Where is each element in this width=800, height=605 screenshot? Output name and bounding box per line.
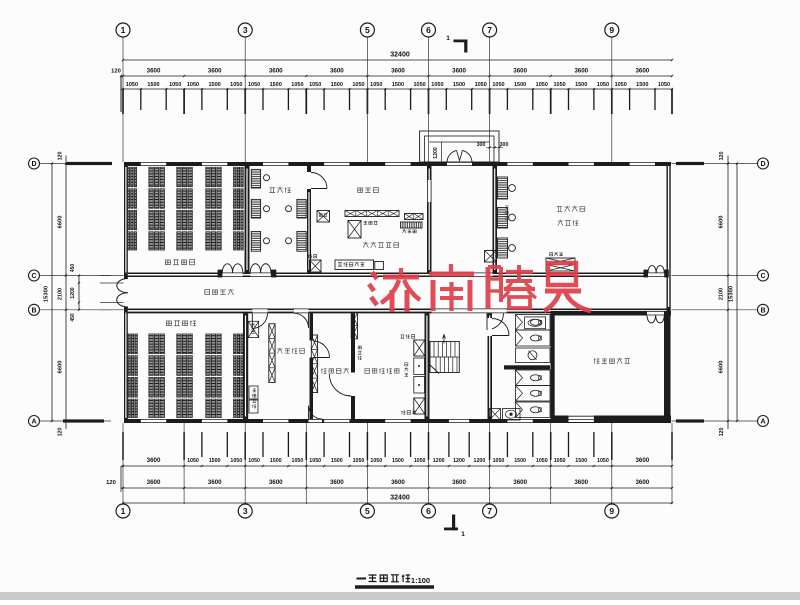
svg-text:32400: 32400	[390, 495, 410, 502]
svg-text:3600: 3600	[208, 479, 222, 486]
svg-text:1500: 1500	[331, 458, 343, 464]
svg-text:1500: 1500	[636, 82, 648, 88]
svg-text:1050: 1050	[352, 82, 364, 88]
svg-text:1050: 1050	[615, 82, 627, 88]
svg-text:1500: 1500	[575, 458, 587, 464]
svg-text:1050: 1050	[553, 82, 565, 88]
svg-text:1: 1	[121, 506, 126, 516]
svg-text:9: 9	[609, 506, 614, 516]
svg-text:1200: 1200	[453, 458, 465, 464]
svg-text:1050: 1050	[292, 458, 304, 464]
svg-text:1500: 1500	[514, 82, 526, 88]
svg-text:B: B	[31, 307, 36, 314]
svg-text:450: 450	[70, 313, 76, 322]
svg-text:1050: 1050	[309, 82, 321, 88]
svg-text:1050: 1050	[413, 82, 425, 88]
svg-text:1050: 1050	[169, 82, 181, 88]
svg-text:1050: 1050	[230, 82, 242, 88]
svg-text:1050: 1050	[248, 458, 260, 464]
svg-text:6600: 6600	[719, 216, 725, 229]
svg-text:1500: 1500	[270, 82, 282, 88]
svg-text:1: 1	[461, 531, 465, 538]
svg-text:3600: 3600	[574, 68, 588, 75]
svg-text:1050: 1050	[493, 458, 505, 464]
svg-text:120: 120	[719, 428, 725, 437]
svg-text:1500: 1500	[270, 458, 282, 464]
svg-text:9: 9	[609, 25, 614, 35]
svg-text:6600: 6600	[58, 361, 64, 374]
svg-text:1050: 1050	[309, 458, 321, 464]
svg-text:1500: 1500	[331, 82, 343, 88]
svg-text:D: D	[31, 161, 36, 168]
svg-text:1500: 1500	[208, 82, 220, 88]
svg-text:6: 6	[426, 506, 431, 516]
svg-text:1500: 1500	[209, 458, 221, 464]
svg-text:3600: 3600	[452, 479, 466, 486]
svg-text:1200: 1200	[433, 458, 445, 464]
svg-text:1050: 1050	[658, 82, 670, 88]
svg-text:3600: 3600	[147, 68, 161, 75]
svg-text:1: 1	[121, 25, 126, 35]
svg-text:1500: 1500	[453, 82, 465, 88]
svg-text:3600: 3600	[147, 457, 161, 464]
svg-text:450: 450	[70, 264, 76, 273]
svg-text:C: C	[31, 273, 36, 280]
svg-text:7: 7	[487, 506, 492, 516]
svg-text:6600: 6600	[719, 361, 725, 374]
svg-text:3: 3	[243, 506, 248, 516]
svg-text:1050: 1050	[414, 458, 426, 464]
svg-text:C: C	[760, 273, 765, 280]
svg-text:3600: 3600	[635, 457, 649, 464]
svg-text:1050: 1050	[536, 458, 548, 464]
svg-text:120: 120	[106, 480, 116, 486]
svg-text:1050: 1050	[492, 82, 504, 88]
svg-text:120: 120	[58, 428, 64, 437]
svg-text:300: 300	[500, 142, 509, 148]
svg-text:5: 5	[365, 25, 370, 35]
svg-text:3600: 3600	[452, 68, 466, 75]
svg-text:3600: 3600	[513, 479, 527, 486]
svg-text:2100: 2100	[58, 288, 64, 300]
svg-text:120: 120	[111, 69, 121, 75]
svg-text:1500: 1500	[514, 458, 526, 464]
svg-text:3600: 3600	[269, 68, 283, 75]
svg-text:1050: 1050	[431, 82, 443, 88]
svg-text:6: 6	[426, 25, 431, 35]
svg-text:1050: 1050	[554, 458, 566, 464]
svg-text:3: 3	[243, 25, 248, 35]
svg-text:1200: 1200	[474, 458, 486, 464]
svg-text:1200: 1200	[70, 287, 76, 298]
svg-text:3600: 3600	[635, 479, 649, 486]
svg-text:1050: 1050	[353, 458, 365, 464]
svg-text:3600: 3600	[330, 479, 344, 486]
svg-text:5: 5	[365, 506, 370, 516]
svg-text:3600: 3600	[208, 68, 222, 75]
svg-text:15300: 15300	[44, 286, 50, 302]
svg-text:1500: 1500	[392, 458, 404, 464]
svg-text:7: 7	[487, 25, 492, 35]
svg-text:1050: 1050	[475, 82, 487, 88]
svg-text:3600: 3600	[147, 479, 161, 486]
svg-text:120: 120	[719, 152, 725, 161]
svg-text:A: A	[31, 419, 36, 426]
svg-text:3600: 3600	[513, 68, 527, 75]
svg-text:120: 120	[58, 152, 64, 161]
svg-text:1:100: 1:100	[411, 576, 430, 585]
svg-text:2100: 2100	[719, 288, 725, 300]
svg-text:1: 1	[446, 35, 450, 42]
svg-text:3600: 3600	[391, 68, 405, 75]
svg-text:15300: 15300	[729, 286, 735, 302]
svg-text:3600: 3600	[269, 479, 283, 486]
svg-text:1500: 1500	[147, 82, 159, 88]
svg-text:1050: 1050	[230, 458, 242, 464]
svg-text:1500: 1500	[575, 82, 587, 88]
svg-text:1050: 1050	[187, 458, 199, 464]
svg-text:300: 300	[477, 142, 486, 148]
svg-text:3600: 3600	[330, 68, 344, 75]
svg-text:1050: 1050	[536, 82, 548, 88]
svg-text:1050: 1050	[126, 82, 138, 88]
svg-text:3600: 3600	[574, 479, 588, 486]
svg-text:D: D	[760, 161, 765, 168]
svg-text:1050: 1050	[248, 82, 260, 88]
svg-text:1050: 1050	[291, 82, 303, 88]
svg-text:3600: 3600	[391, 479, 405, 486]
svg-text:1050: 1050	[370, 82, 382, 88]
svg-text:6600: 6600	[58, 216, 64, 229]
svg-text:3600: 3600	[635, 68, 649, 75]
svg-text:1050: 1050	[597, 458, 609, 464]
svg-text:1050: 1050	[597, 82, 609, 88]
svg-text:1050: 1050	[187, 82, 199, 88]
svg-text:A: A	[760, 419, 765, 426]
svg-text:1500: 1500	[392, 82, 404, 88]
svg-text:1050: 1050	[370, 458, 382, 464]
svg-text:B: B	[760, 307, 765, 314]
svg-text:32400: 32400	[390, 52, 410, 59]
svg-text:1200: 1200	[433, 147, 439, 159]
